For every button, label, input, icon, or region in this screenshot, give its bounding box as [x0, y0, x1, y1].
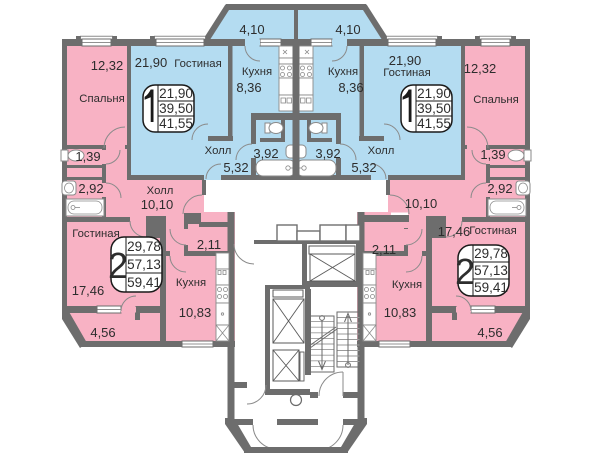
svg-text:Кухня: Кухня — [328, 66, 358, 78]
svg-text:Кухня: Кухня — [392, 279, 422, 291]
svg-text:12,32: 12,32 — [464, 61, 497, 76]
svg-text:21,90: 21,90 — [159, 86, 193, 101]
svg-text:Холл: Холл — [368, 145, 395, 157]
svg-text:Спальня: Спальня — [473, 94, 518, 106]
svg-text:21,90: 21,90 — [417, 86, 451, 101]
svg-text:21,90: 21,90 — [135, 55, 168, 70]
svg-text:2: 2 — [455, 251, 475, 292]
svg-text:39,50: 39,50 — [159, 101, 193, 116]
svg-text:1,39: 1,39 — [480, 147, 505, 162]
svg-text:10,83: 10,83 — [179, 305, 212, 320]
svg-text:Кухня: Кухня — [176, 277, 206, 289]
svg-text:10,10: 10,10 — [141, 197, 174, 212]
svg-text:17,46: 17,46 — [72, 283, 105, 298]
svg-text:59,41: 59,41 — [474, 280, 508, 295]
svg-text:2,92: 2,92 — [487, 181, 512, 196]
svg-text:4,10: 4,10 — [335, 22, 360, 37]
svg-text:8,36: 8,36 — [236, 80, 261, 95]
svg-text:4,56: 4,56 — [90, 325, 115, 340]
svg-text:3,92: 3,92 — [315, 146, 340, 161]
svg-text:39,50: 39,50 — [417, 101, 451, 116]
svg-text:2: 2 — [108, 245, 128, 286]
svg-text:59,41: 59,41 — [127, 275, 161, 290]
svg-text:Кухня: Кухня — [242, 66, 272, 78]
svg-text:Гостиная: Гостиная — [469, 225, 516, 237]
svg-text:57,13: 57,13 — [474, 263, 508, 278]
svg-text:8,36: 8,36 — [338, 80, 363, 95]
svg-text:4,10: 4,10 — [239, 22, 264, 37]
svg-text:Гостиная: Гостиная — [72, 228, 119, 240]
svg-text:4,56: 4,56 — [477, 325, 502, 340]
svg-text:29,78: 29,78 — [127, 239, 161, 254]
svg-text:3,92: 3,92 — [253, 146, 278, 161]
svg-text:2,92: 2,92 — [78, 181, 103, 196]
svg-text:5,32: 5,32 — [351, 160, 376, 175]
svg-text:29,78: 29,78 — [474, 246, 508, 261]
svg-text:12,32: 12,32 — [91, 58, 124, 73]
svg-text:41,55: 41,55 — [159, 116, 193, 131]
svg-text:5,32: 5,32 — [223, 160, 248, 175]
svg-text:10,83: 10,83 — [384, 305, 417, 320]
svg-text:21,90: 21,90 — [389, 53, 422, 68]
svg-text:Спальня: Спальня — [79, 93, 124, 105]
svg-text:Холл: Холл — [147, 185, 174, 197]
svg-text:Гостиная: Гостиная — [174, 58, 221, 70]
svg-text:2,11: 2,11 — [372, 242, 396, 257]
svg-text:Холл: Холл — [205, 145, 232, 157]
svg-text:57,13: 57,13 — [127, 257, 161, 272]
svg-text:41,55: 41,55 — [417, 116, 451, 131]
svg-text:Гостиная: Гостиная — [383, 67, 430, 79]
svg-text:17,46: 17,46 — [438, 224, 471, 239]
svg-text:10,10: 10,10 — [405, 196, 438, 211]
svg-text:1,39: 1,39 — [75, 149, 100, 164]
svg-text:2,11: 2,11 — [197, 237, 221, 252]
